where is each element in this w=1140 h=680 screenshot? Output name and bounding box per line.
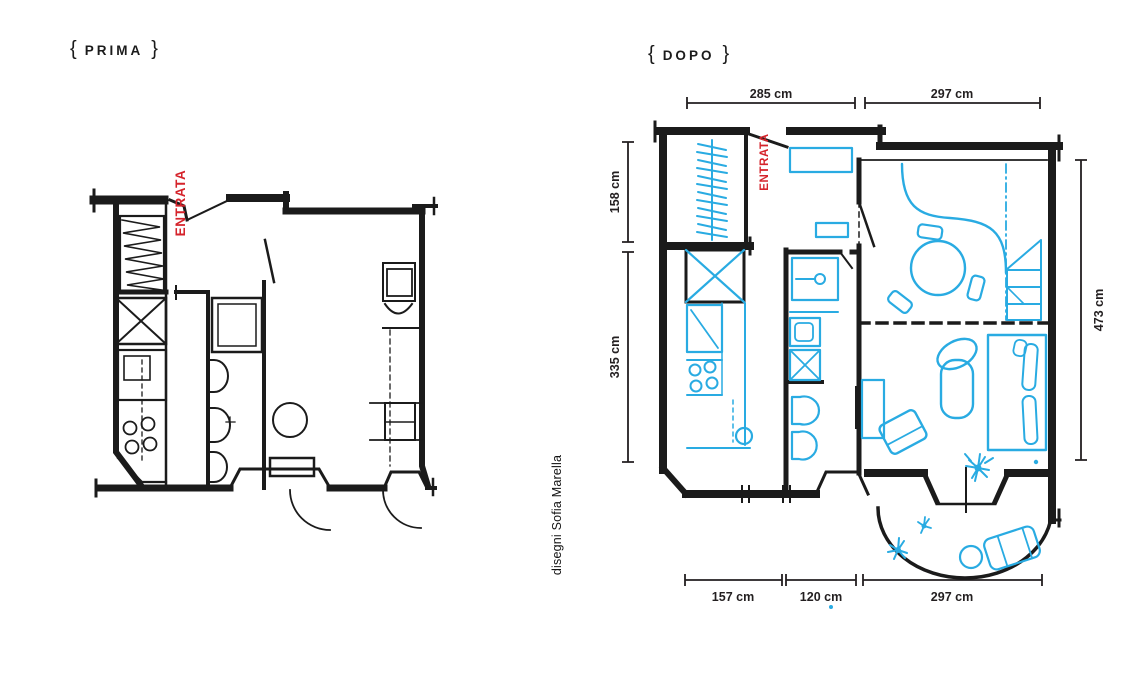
designer-credit: disegni Sofia Marella [550,455,564,575]
round-table [273,403,307,437]
plant [888,538,907,559]
dim-left-lower: 335 cm [608,336,622,378]
close-brace: } [151,39,158,59]
before-plan-title: { PRIMA } [70,40,158,60]
before-bathroom [176,240,274,488]
after-bedroom [862,333,1046,481]
after-walls [655,122,1060,578]
lounger [982,525,1041,572]
before-floorplan: ENTRATA [88,160,440,560]
open-brace: { [70,39,77,59]
chaise-chair [932,333,981,418]
desk-chair [385,304,412,314]
dim-bottom-mid: 120 cm [800,590,842,604]
after-entrance-label: ENTRATA [759,133,771,190]
magazine-floorplan-spread: { PRIMA } { DOPO } disegni Sofia Marella [0,0,1140,680]
shower-drain [815,274,825,284]
toilet-icon [209,360,228,392]
pillow [1022,396,1037,445]
cushion [1012,339,1027,357]
after-dining-room [887,164,1041,320]
sink-icon [209,408,230,442]
dim-bottom-right: 297 cm [931,590,973,604]
blue-speck [829,605,833,609]
bathtub [212,298,262,352]
pouf [960,546,982,568]
after-shaft [686,250,744,302]
hall-console [816,223,848,237]
pillow [1022,344,1038,391]
after-floorplan: 285 cm 297 cm 158 cm 335 cm 473 cm 157 c… [600,80,1140,620]
toilet-icon [792,397,819,425]
bench [270,458,314,476]
close-brace: } [722,44,729,64]
open-brace: { [648,44,655,64]
after-bathroom [790,258,838,460]
dim-left-upper: 158 cm [608,171,622,213]
plant [965,454,993,481]
shelving-unit [1006,240,1041,320]
stove-burners [690,362,718,392]
dim-bottom-left: 157 cm [712,590,754,604]
armchair [878,408,928,455]
dining-door-leaf [859,202,874,246]
before-living-room [270,263,422,476]
after-plan-title: { DOPO } [648,45,729,65]
sideboard [862,380,884,438]
kitchen-stove-burners [124,418,157,454]
blue-dot [1034,460,1038,464]
bathroom-door-leaf [265,240,274,282]
bidet-icon [792,432,817,460]
wardrobe-hatch [122,220,164,290]
after-wardrobe [697,140,727,240]
dim-right: 473 cm [1092,289,1106,331]
chair [967,275,986,302]
dining-table [911,241,965,295]
dim-top-right: 297 cm [931,87,973,101]
plant [918,517,931,533]
chair [887,289,914,314]
entry-cabinet [790,148,852,172]
bidet-icon [209,452,227,482]
chair [917,224,943,240]
before-entrance-label: ENTRATA [173,170,188,237]
curtain-curve [902,164,1006,273]
before-window-door-swings [290,490,421,530]
after-plan-title-label: DOPO [663,48,715,63]
dim-top-left: 285 cm [750,87,792,101]
before-plan-title-label: PRIMA [85,43,144,58]
before-corridor [116,200,166,488]
